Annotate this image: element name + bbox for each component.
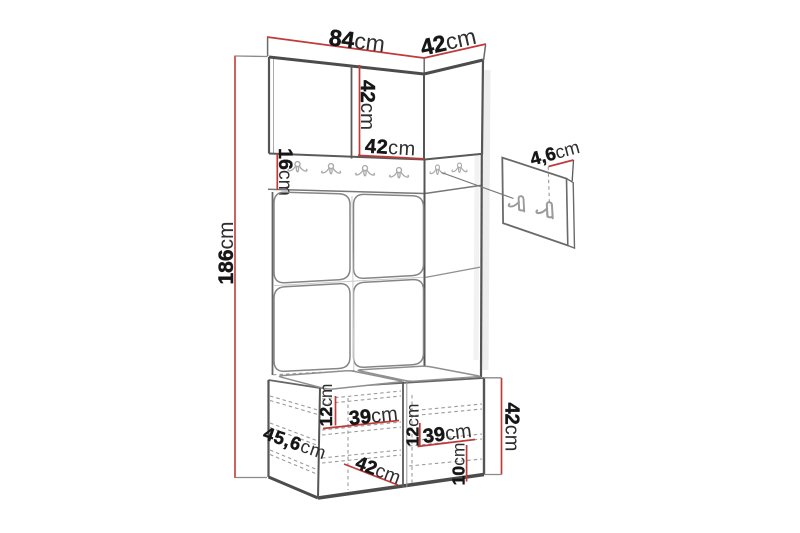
- svg-text:42cm: 42cm: [356, 80, 379, 130]
- svg-text:186cm: 186cm: [215, 221, 238, 284]
- svg-text:16cm: 16cm: [274, 148, 296, 196]
- svg-text:42cm: 42cm: [418, 23, 479, 61]
- svg-text:42cm: 42cm: [364, 135, 416, 160]
- svg-text:12cm: 12cm: [403, 404, 423, 447]
- svg-text:42cm: 42cm: [501, 403, 523, 452]
- svg-text:10cm: 10cm: [449, 443, 469, 486]
- svg-text:12cm: 12cm: [316, 384, 336, 427]
- svg-text:84cm: 84cm: [327, 24, 386, 57]
